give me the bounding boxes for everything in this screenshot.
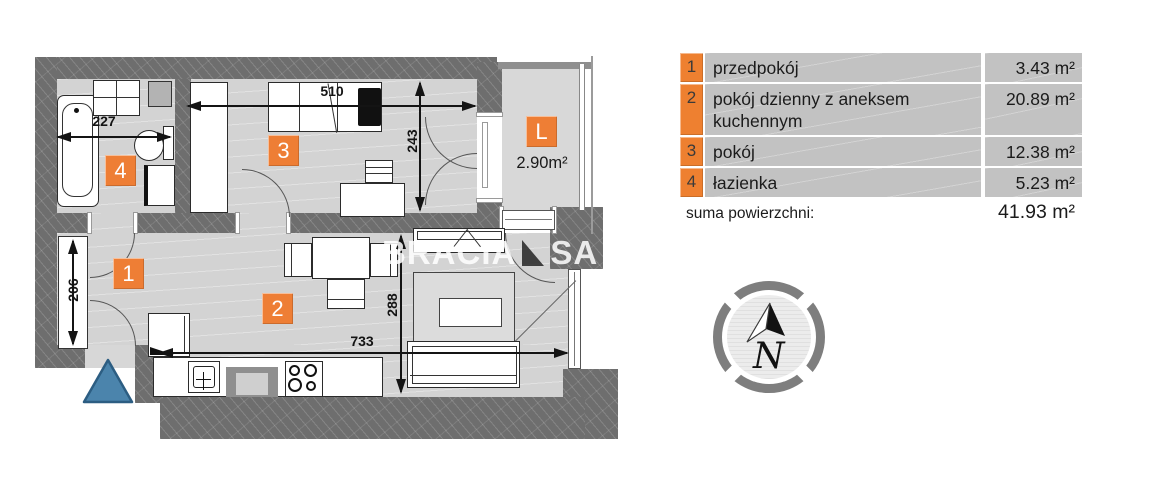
kitchen-sink	[188, 361, 220, 393]
dim-arrow-510	[188, 105, 475, 107]
north-arrow-icon: N	[737, 298, 801, 374]
burner	[306, 381, 316, 391]
pillow	[358, 88, 381, 126]
bathroom-cabinet	[148, 81, 172, 107]
legend-row: 3 pokój 12.38 m²	[680, 137, 1082, 166]
legend-row-name: przedpokój	[705, 53, 981, 82]
dim-label-206: 206	[66, 268, 80, 312]
loggia-door-leaf	[482, 122, 488, 188]
legend-row-name: pokój	[705, 137, 981, 166]
wall-mid-b	[135, 213, 238, 233]
wall-top	[35, 57, 497, 79]
wall-mid-a	[57, 213, 90, 233]
bathtub-faucet	[74, 108, 79, 113]
wall-bath-room3	[175, 79, 191, 213]
dim-label-510: 510	[310, 84, 354, 98]
watermark-logo-triangle	[522, 240, 544, 266]
jamb	[133, 212, 138, 234]
jamb	[87, 212, 92, 234]
room-marker-bath: 4	[105, 155, 136, 186]
watermark-text-right: SA	[550, 234, 598, 272]
north-label: N	[752, 336, 786, 374]
legend-row-number: 1	[680, 53, 703, 82]
dim-arrow-733	[160, 352, 567, 354]
floorplan-page: 227 510 243 206 288 733 1 2 3 4 L 2.90m²…	[0, 0, 1163, 497]
washing-machine	[144, 165, 175, 206]
entrance-marker	[82, 358, 134, 404]
room-marker-living: 2	[262, 293, 293, 324]
burner	[304, 364, 317, 377]
legend-total-label: suma powierzchni:	[680, 205, 985, 223]
dim-label-227: 227	[82, 114, 126, 128]
dim-label-733: 733	[340, 334, 384, 348]
room-marker-hall: 1	[113, 258, 144, 289]
loggia-right-rail	[579, 64, 585, 210]
dim-label-288: 288	[385, 283, 399, 327]
legend-total-value: 41.93 m²	[985, 201, 1082, 224]
legend-table: 1 przedpokój 3.43 m² 2 pokój dzienny z a…	[680, 53, 1082, 224]
loggia-area-label: 2.90m²	[498, 154, 586, 173]
floor-plan: 227 510 243 206 288 733 1 2 3 4 L 2.90m²…	[30, 50, 660, 450]
stove	[285, 361, 323, 397]
compass: N	[708, 276, 830, 398]
window-loggia	[502, 210, 555, 230]
building-edge-line	[591, 56, 593, 234]
desk-chair	[365, 160, 393, 183]
jamb	[476, 112, 503, 117]
jamb	[235, 212, 240, 234]
legend-row-area: 5.23 m²	[985, 168, 1082, 197]
legend-row: 1 przedpokój 3.43 m²	[680, 53, 1082, 82]
legend-row: 4 łazienka 5.23 m²	[680, 168, 1082, 197]
dining-table	[312, 237, 370, 279]
wall-bottom	[160, 397, 585, 439]
legend-row: 2 pokój dzienny z aneksem kuchennym 20.8…	[680, 84, 1082, 135]
burner	[288, 378, 302, 392]
bath-door-opening	[90, 213, 135, 233]
dim-arrow-227	[58, 136, 170, 138]
loggia-top-wall	[498, 62, 591, 69]
burner	[289, 365, 300, 376]
chair-bottom	[327, 279, 365, 309]
legend-row-area: 12.38 m²	[985, 137, 1082, 166]
room-marker-room: 3	[268, 135, 299, 166]
legend-row-area: 20.89 m²	[985, 84, 1082, 135]
legend-row-number: 2	[680, 84, 703, 135]
legend-row-number: 3	[680, 137, 703, 166]
sofa	[407, 341, 520, 388]
jamb	[476, 198, 503, 203]
legend-total-row: suma powierzchni: 41.93 m²	[680, 201, 1082, 224]
desk	[340, 183, 405, 217]
legend-row-area: 3.43 m²	[985, 53, 1082, 82]
legend-row-number: 4	[680, 168, 703, 197]
dim-label-243: 243	[405, 119, 419, 163]
watermark-text-left: BRACIA	[382, 234, 516, 272]
kitchen-recess	[226, 367, 278, 397]
legend-row-name: łazienka	[705, 168, 981, 197]
wall-left	[35, 57, 57, 368]
watermark: BRACIA SA	[382, 234, 598, 272]
chair-left	[284, 243, 312, 277]
wall-loggia-left-top	[477, 62, 502, 117]
room-marker-loggia: L	[526, 116, 557, 147]
legend-row-name: pokój dzienny z aneksem kuchennym	[705, 84, 981, 135]
bathroom-shelf	[93, 80, 140, 116]
rug	[413, 272, 515, 342]
